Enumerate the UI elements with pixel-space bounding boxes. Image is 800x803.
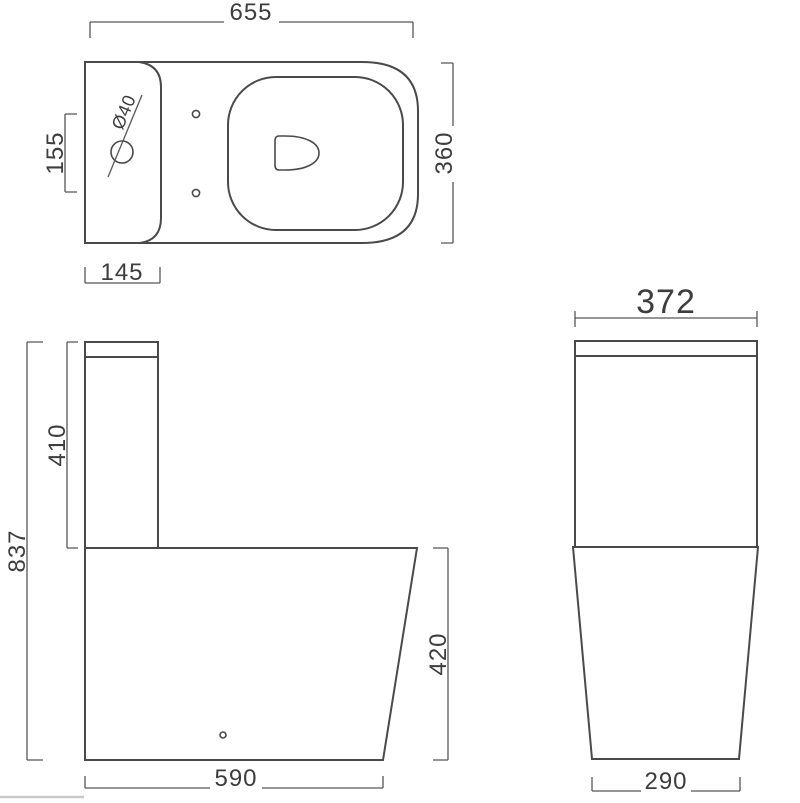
dimension-label-hole-spacing: 155: [42, 131, 69, 174]
dimension-cistern-height: 410: [44, 342, 78, 548]
seat-ring-outline: [228, 77, 403, 230]
front-view: 372 290: [573, 283, 758, 795]
dimension-overall-depth: 360: [431, 63, 458, 243]
dimension-base-width: 290: [592, 768, 740, 795]
cistern-divider-line: [139, 62, 161, 243]
dimension-hole-spacing: 155: [42, 114, 77, 192]
bowl-outline-front: [573, 547, 758, 759]
side-view: 837 410 420 590: [4, 342, 452, 792]
dimension-overall-width: 655: [90, 0, 413, 38]
cistern-outline-front: [575, 341, 757, 547]
cistern-outline-side: [85, 342, 158, 548]
dimension-bowl-height: 420: [425, 548, 452, 760]
dimension-label-cistern-height: 410: [44, 423, 71, 466]
drawing-canvas: Ø40 655 360 155 145: [0, 0, 800, 803]
technical-drawing: Ø40 655 360 155 145: [0, 0, 800, 803]
dimension-label-overall-width: 655: [229, 0, 272, 26]
dimension-label-overall-height: 837: [4, 529, 31, 572]
dimension-base-depth: 590: [85, 765, 383, 792]
dimension-label-base-depth: 590: [214, 765, 257, 792]
dimension-label-cistern-width: 372: [636, 283, 696, 321]
hinge-hole-bottom: [192, 189, 199, 196]
top-view: Ø40 655 360 155 145: [42, 0, 458, 286]
hinge-hole-top: [192, 110, 199, 117]
dimension-label-overall-depth: 360: [431, 131, 458, 174]
dimension-cistern-width: 372: [575, 283, 757, 327]
dimension-label-base-width: 290: [644, 768, 687, 795]
dimension-label-bowl-height: 420: [425, 632, 452, 675]
toilet-body-outline-top: [85, 62, 418, 243]
bowl-outline-side: [85, 548, 417, 760]
dimension-overall-height: 837: [4, 342, 43, 760]
drain-hole: [220, 732, 226, 738]
dimension-label-cistern-depth: 145: [100, 259, 143, 286]
flush-valve-outline: [275, 136, 319, 170]
dimension-cistern-depth: 145: [85, 259, 160, 286]
